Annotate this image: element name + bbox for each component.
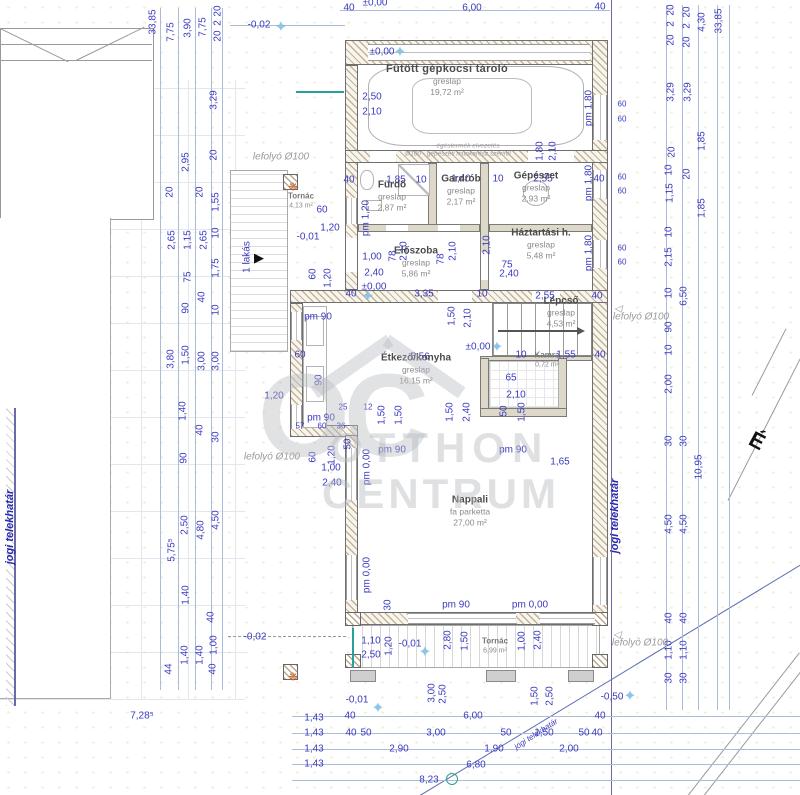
stair-opening: [532, 291, 560, 302]
dim-chain-line: [195, 8, 196, 690]
door-opening: [438, 291, 472, 302]
door-opening: [481, 252, 488, 280]
wall-pantry-bottom: [480, 408, 567, 417]
shower: [398, 164, 430, 196]
entry-step: [350, 670, 376, 682]
door-opening: [386, 225, 408, 231]
door-opening: [370, 151, 396, 162]
window-livingroom-left: [346, 555, 357, 600]
dim-chain-line: [211, 8, 212, 690]
neighbour-roof-line: [0, 44, 152, 45]
porch-deck-bottom: [352, 625, 600, 668]
wall-pantry-right: [558, 358, 567, 412]
dim-chain-line: [717, 5, 718, 710]
porch-deck-left: [230, 170, 288, 352]
door-opening: [438, 225, 460, 231]
porch-post: [592, 654, 608, 668]
dim-chain-line: [160, 8, 161, 690]
porch-post: [345, 612, 361, 626]
wall-mech-utility: [489, 224, 592, 232]
terrace-door-opening: [540, 613, 595, 624]
toilet: [360, 170, 374, 190]
window-right: [593, 170, 607, 198]
door-opening: [528, 151, 574, 162]
car-cabin-outline: [412, 78, 532, 134]
floor-plan-canvas: É: [0, 0, 800, 795]
dim-chain-line: [222, 8, 223, 690]
window-kitchen: [291, 405, 302, 429]
kitchen-sink: [306, 316, 324, 346]
boiler: [523, 180, 549, 206]
wall-bath-hall: [358, 224, 480, 232]
level-dash-line: [228, 636, 346, 637]
dim-chain-line: [292, 780, 800, 781]
window-kitchen: [291, 312, 302, 340]
wall-pantry-left: [480, 358, 489, 412]
dim-chain-line: [729, 5, 730, 710]
dim-chain-line: [340, 10, 610, 11]
terrace-window-opening: [408, 613, 516, 624]
washbasin: [366, 200, 382, 211]
window-right: [593, 240, 607, 268]
entry-step: [568, 670, 594, 682]
dim-chain-line: [292, 733, 800, 734]
dim-chain-line: [292, 749, 800, 750]
window-left: [346, 198, 357, 224]
teal-marker-line: [296, 91, 344, 93]
entry-step: [486, 670, 516, 682]
teal-marker-line: [352, 628, 354, 668]
window-right: [593, 95, 607, 140]
dim-chain-line: [698, 5, 699, 710]
kitchen-stove: [306, 366, 324, 402]
dim-chain-line: [178, 8, 179, 690]
neighbour-building: [0, 28, 154, 220]
dim-chain-line: [230, 25, 345, 26]
porch-post: [283, 664, 298, 680]
stair-direction-arrow: [498, 330, 578, 332]
porch-post: [283, 174, 298, 190]
boundary-hatch: [6, 408, 14, 706]
dim-chain-line: [292, 716, 800, 717]
door-right: [593, 557, 607, 605]
garage-door-opening: [368, 44, 590, 61]
dim-chain-line: [292, 764, 800, 765]
dim-chain-line: [682, 5, 683, 710]
dim-chain-line: [666, 5, 667, 710]
pantry-shelving: [489, 361, 559, 408]
neighbour-plot: [0, 218, 111, 699]
property-boundary-right: [611, 0, 612, 795]
property-boundary-left: [14, 408, 16, 706]
entrance-door-opening: [346, 238, 357, 272]
window-livingroom-left: [346, 448, 357, 500]
